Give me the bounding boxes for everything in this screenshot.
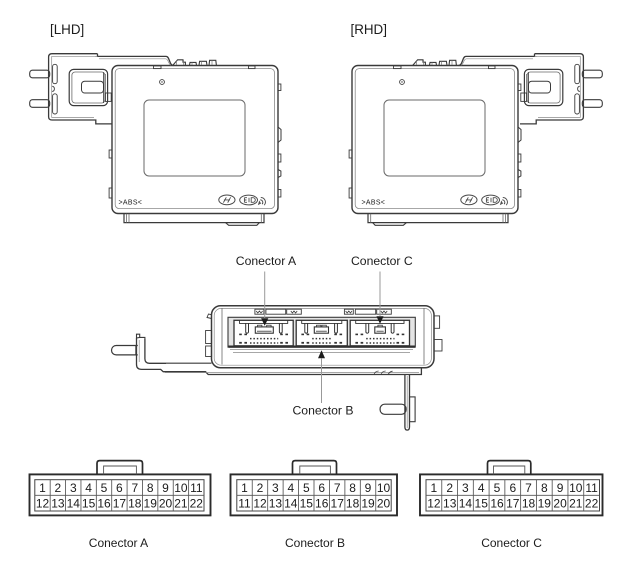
svg-text:Conector A: Conector A [89, 536, 148, 550]
svg-text:6: 6 [509, 481, 516, 495]
svg-text:22: 22 [585, 497, 599, 511]
svg-text:5: 5 [101, 481, 108, 495]
svg-text:9: 9 [162, 481, 169, 495]
svg-text:3: 3 [462, 481, 469, 495]
svg-text:11: 11 [585, 481, 598, 495]
svg-text:14: 14 [284, 497, 298, 511]
svg-text:15: 15 [82, 497, 96, 511]
svg-text:>ABS<: >ABS< [119, 200, 143, 207]
svg-text:8: 8 [147, 481, 154, 495]
svg-text:7: 7 [334, 481, 341, 495]
svg-text:18: 18 [346, 497, 360, 511]
svg-text:12: 12 [427, 497, 441, 511]
svg-text:>ABS<: >ABS< [362, 200, 386, 207]
svg-text:10: 10 [377, 481, 391, 495]
svg-text:1: 1 [431, 481, 438, 495]
svg-text:14: 14 [67, 497, 81, 511]
svg-text:[LHD]: [LHD] [50, 22, 84, 37]
svg-text:18: 18 [522, 497, 536, 511]
svg-text:12: 12 [36, 497, 50, 511]
svg-text:9: 9 [365, 481, 372, 495]
svg-text:2: 2 [446, 481, 453, 495]
svg-text:Conector A: Conector A [236, 254, 297, 268]
svg-text:21: 21 [174, 497, 188, 511]
svg-text:Conector B: Conector B [285, 536, 345, 550]
svg-text:Conector C: Conector C [351, 254, 413, 268]
svg-text:11: 11 [238, 497, 251, 511]
svg-text:2: 2 [55, 481, 62, 495]
svg-text:14: 14 [459, 497, 473, 511]
svg-text:20: 20 [377, 497, 391, 511]
svg-text:13: 13 [443, 497, 457, 511]
svg-text:18: 18 [128, 497, 142, 511]
svg-text:3: 3 [272, 481, 279, 495]
svg-text:20: 20 [553, 497, 567, 511]
svg-text:19: 19 [361, 497, 375, 511]
svg-text:16: 16 [315, 497, 329, 511]
svg-text:11: 11 [190, 481, 203, 495]
svg-text:6: 6 [116, 481, 123, 495]
svg-text:22: 22 [190, 497, 204, 511]
svg-text:17: 17 [506, 497, 520, 511]
svg-text:9: 9 [557, 481, 564, 495]
svg-text:13: 13 [51, 497, 65, 511]
svg-text:4: 4 [85, 481, 92, 495]
svg-text:8: 8 [541, 481, 548, 495]
svg-text:21: 21 [569, 497, 583, 511]
svg-text:4: 4 [287, 481, 294, 495]
svg-text:5: 5 [303, 481, 310, 495]
svg-text:19: 19 [144, 497, 158, 511]
svg-text:10: 10 [174, 481, 188, 495]
svg-text:3: 3 [70, 481, 77, 495]
svg-text:10: 10 [569, 481, 583, 495]
svg-text:7: 7 [131, 481, 138, 495]
svg-text:17: 17 [331, 497, 345, 511]
svg-text:17: 17 [113, 497, 127, 511]
svg-text:4: 4 [478, 481, 485, 495]
svg-text:12: 12 [253, 497, 267, 511]
svg-text:1: 1 [39, 481, 46, 495]
svg-text:6: 6 [318, 481, 325, 495]
svg-text:1: 1 [241, 481, 248, 495]
svg-text:19: 19 [538, 497, 552, 511]
svg-text:15: 15 [300, 497, 314, 511]
svg-text:[RHD]: [RHD] [351, 22, 387, 37]
svg-text:Conector C: Conector C [481, 536, 542, 550]
svg-text:15: 15 [475, 497, 489, 511]
svg-text:20: 20 [159, 497, 173, 511]
svg-text:7: 7 [525, 481, 532, 495]
svg-text:Conector B: Conector B [293, 403, 354, 417]
svg-text:13: 13 [269, 497, 283, 511]
svg-text:16: 16 [490, 497, 504, 511]
svg-text:8: 8 [349, 481, 356, 495]
svg-text:16: 16 [97, 497, 111, 511]
svg-text:5: 5 [494, 481, 501, 495]
svg-text:2: 2 [257, 481, 264, 495]
